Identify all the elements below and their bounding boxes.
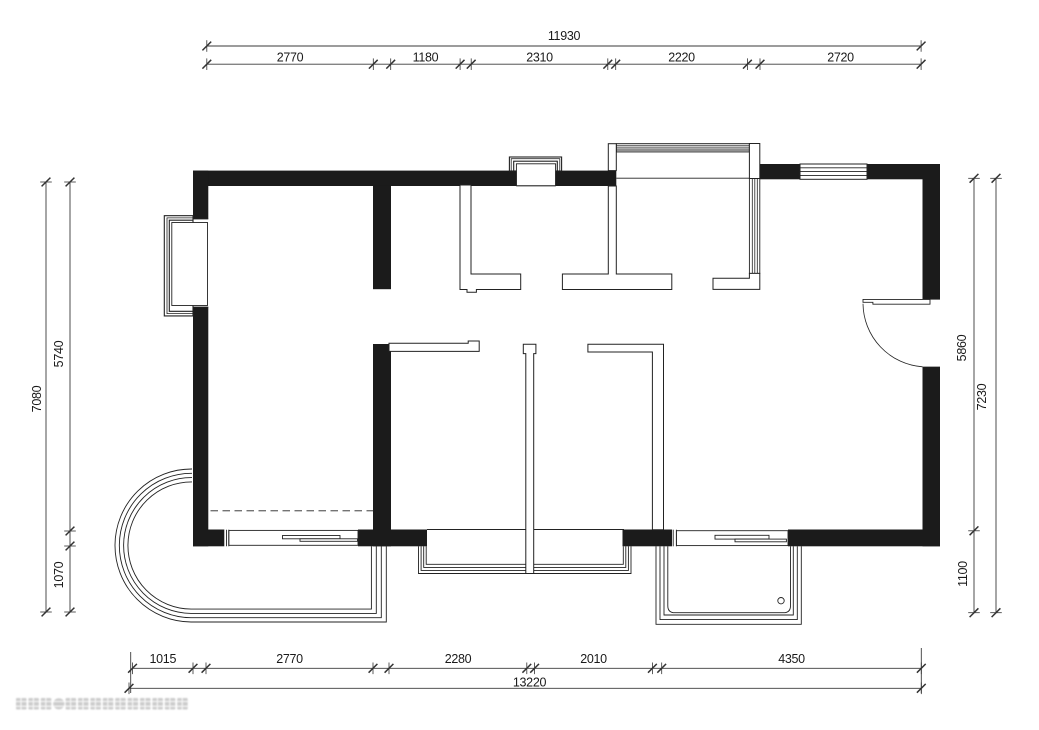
svg-text:1070: 1070 (52, 561, 66, 588)
svg-text:2770: 2770 (276, 652, 303, 666)
svg-text:7080: 7080 (30, 385, 44, 412)
svg-text:2220: 2220 (668, 51, 695, 65)
svg-text:2770: 2770 (277, 51, 304, 65)
svg-text:1015: 1015 (149, 652, 176, 666)
svg-text:2310: 2310 (526, 51, 553, 65)
svg-text:4350: 4350 (778, 652, 805, 666)
svg-text:2280: 2280 (445, 652, 472, 666)
svg-text:2720: 2720 (827, 51, 854, 65)
svg-text:7230: 7230 (975, 383, 989, 410)
svg-text:5860: 5860 (955, 334, 969, 361)
svg-text:1180: 1180 (413, 51, 439, 65)
svg-text:13220: 13220 (513, 676, 547, 690)
svg-text:5740: 5740 (52, 340, 66, 367)
svg-text:11930: 11930 (548, 29, 581, 43)
svg-text:2010: 2010 (580, 652, 607, 666)
svg-text:1100: 1100 (956, 561, 970, 587)
